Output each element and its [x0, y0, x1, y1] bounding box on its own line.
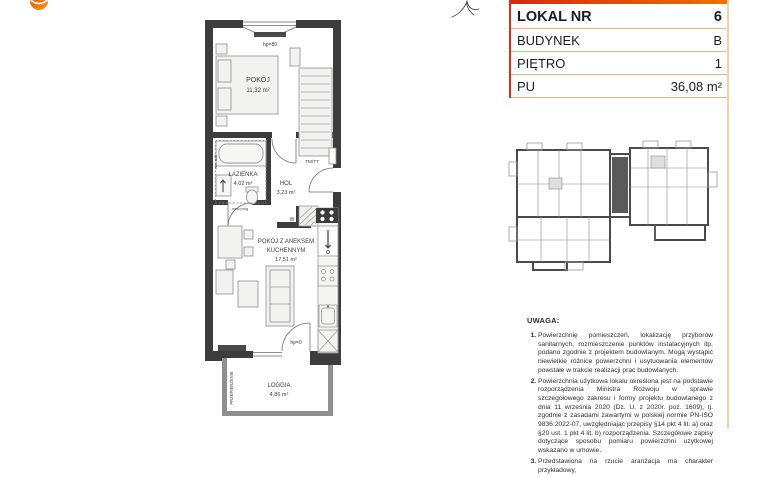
row-label: BUDYNEK	[517, 33, 580, 48]
room-aneks-area: 17,51 m²	[275, 257, 297, 263]
table-row-lokal: LOKAL NR 6	[511, 4, 728, 29]
row-label: PU	[517, 79, 535, 94]
site-key-plan	[505, 132, 720, 277]
room-pokoj-area: 11,32 m²	[246, 88, 269, 94]
notes-list: Powierzchnię pomieszczeń, lokalizację pr…	[527, 332, 713, 475]
room-loggia-area: 4,86 m²	[270, 392, 289, 398]
right-accent-line	[727, 0, 729, 428]
room-loggia-label: LOGGIA	[267, 383, 290, 389]
notes-section: UWAGA: Powierzchnię pomieszczeń, lokaliz…	[527, 316, 713, 477]
room-pokoj-label: POKÓJ	[246, 75, 270, 84]
window-blind-box	[254, 32, 286, 37]
note-item: Powierzchnię pomieszczeń, lokalizację pr…	[538, 332, 713, 376]
window-sill-label: hp=80	[263, 42, 277, 48]
highlighted-unit	[612, 157, 628, 213]
table-row-pietro: PIĘTRO 1	[511, 52, 728, 75]
unit-info-table: LOKAL NR 6 BUDYNEK B PIĘTRO 1 PU 36,08 m…	[509, 0, 728, 98]
room-aneks-label1: POKÓJ Z ANEKSEM	[258, 238, 314, 245]
row-label: LOKAL NR	[517, 9, 592, 25]
notes-heading: UWAGA:	[527, 316, 713, 325]
row-value: 36,08 m²	[671, 79, 722, 94]
row-value: 1	[715, 56, 722, 71]
window-top	[243, 22, 296, 33]
row-value: B	[713, 33, 722, 48]
lowered-ceiling-label: obn. sufit	[214, 155, 218, 170]
room-lazienka-label: ŁAZIENKA	[228, 172, 257, 178]
note-item: Powierzchnia użytkowa lokalu określona j…	[538, 378, 713, 456]
balcony-door	[282, 323, 310, 351]
water-meter-label: W	[290, 217, 295, 223]
hall-wardrobe-edge	[296, 206, 299, 226]
room-aneks-label2: KUCHENNYM	[267, 248, 306, 254]
door-sill-label: hp=0	[290, 340, 301, 346]
table-row-pu: PU 36,08 m²	[511, 75, 728, 98]
balcony-window	[253, 353, 282, 357]
tmtt-niche	[329, 148, 336, 164]
radiator	[218, 345, 246, 351]
tmtt-label: TM/TT	[305, 159, 319, 165]
room-lazienka-area: 4,02 m²	[234, 181, 253, 187]
row-label: PIĘTRO	[517, 56, 565, 71]
table-row-budynek: BUDYNEK B	[511, 29, 728, 52]
hall-wardrobe	[299, 206, 318, 226]
room-hol-label: HOL	[280, 181, 293, 187]
note-item: Przedstawiona na rzucie aranżacja ma cha…	[538, 458, 713, 475]
row-value: 6	[714, 9, 722, 25]
floor-plan: hp=80 POKÓJ 11,32 m² ŁAZIENKA 4,02	[0, 0, 500, 428]
partition-label: PRZEPIERZENIE	[229, 371, 234, 404]
room-hol-area: 3,23 m²	[277, 190, 296, 196]
